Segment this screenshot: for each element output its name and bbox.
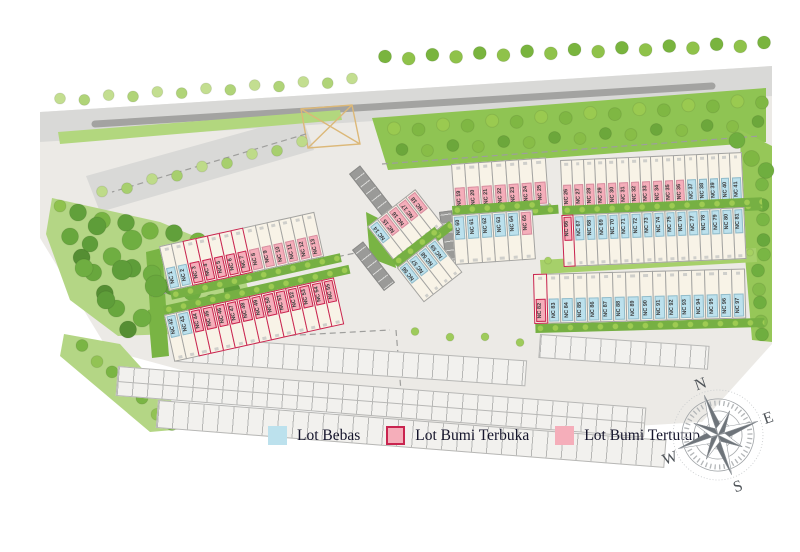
compass-star [665,382,772,489]
lot-color-band: NC 32 [631,182,640,205]
lot-number-label: NC 74 [656,217,662,233]
lot-number-label: NC 18 [411,195,425,211]
lot-number-label: NC 79 [713,214,719,230]
lot-number-label: NC 10 [275,246,284,262]
lot-number-label: NC 93 [683,299,689,315]
lot-color-band: NC 29 [597,184,606,207]
lot-number-label: NC 87 [604,301,610,317]
lot-color-band: NC 74 [655,213,664,237]
lot-number-label: NC 28 [587,188,593,204]
lot-color-band: NC 34 [653,181,662,204]
legend-swatch-lot-bumi-tertutup [555,426,574,445]
lot-number-label: NC 8 [252,252,260,265]
lot-block-h: NC 66NC 67NC 68NC 69NC 70NC 71NC 72NC 73… [562,197,765,267]
lot-number-label: NC 89 [630,300,636,316]
lot-number-label: NC 73 [645,217,651,233]
lot-number-label: NC 60 [456,220,463,236]
lot-color-band: NC 90 [641,296,652,319]
lot-number-label: NC 86 [591,301,597,317]
lot-color-band: NC 92 [667,296,678,319]
lot-color-band: NC 7 [237,251,250,273]
lot-color-band: NC 64 [507,212,519,235]
lot-number-label: NC 88 [617,301,623,317]
lot-nc-81[interactable]: NC 81 [732,207,747,259]
legend-label: Lot Bumi Terbuka [415,427,529,445]
lot-number-label: NC 62 [483,218,490,234]
legend: Lot Bebas Lot Bumi Terbuka Lot Bumi Tert… [268,426,700,445]
lot-color-band: NC 79 [711,210,720,234]
lot-number-label: NC 34 [655,185,661,201]
lot-number-label: NC 95 [709,298,715,314]
lot-number-label: NC 54 [314,286,323,302]
lot-nc-82[interactable]: NC 82 [533,274,548,324]
lot-number-label: NC 77 [690,215,696,231]
lot-number-label: NC 76 [679,216,685,232]
lot-number-label: NC 1 [169,271,177,284]
lot-color-band: NC 76 [677,212,686,236]
lot-color-band: NC 78 [700,211,709,235]
lot-color-band: NC 33 [642,182,651,205]
lot-color-band: NC 26 [563,185,572,208]
lot-color-band: NC 75 [666,212,675,236]
lot-number-label: NC 78 [702,215,708,231]
lot-number-label: NC 4 [204,263,212,276]
lot-number-label: NC 12 [299,240,308,256]
lot-color-band: NC 13 [309,235,322,257]
lot-number-label: NC 85 [578,302,584,318]
lot-nc-97[interactable]: NC 97 [731,268,746,318]
lot-number-label: NC 90 [644,300,650,316]
lot-number-label: NC 94 [696,299,702,315]
lot-nc-66[interactable]: NC 66 [561,214,576,266]
lot-number-label: NC 31 [621,186,627,202]
legend-swatch-lot-bebas [268,426,287,445]
lot-color-band: NC 94 [694,295,705,318]
lot-number-label: NC 47 [229,304,238,320]
lot-number-label: NC 37 [689,183,695,199]
compass-north-label: N [692,374,709,394]
lot-number-label: NC 6 [228,258,236,271]
lot-color-band: NC 37 [687,180,696,203]
lot-number-label: NC 75 [668,216,674,232]
lot-color-band: NC 55 [324,280,338,303]
lot-number-label: NC 9 [264,250,272,263]
lot-number-label: NC 44 [193,312,202,328]
lot-number-label: NC 27 [576,188,582,204]
lot-number-label: NC 59 [431,243,445,259]
lot-number-label: NC 67 [576,220,582,236]
lot-number-label: NC 80 [724,214,730,230]
lot-color-band: NC 87 [602,297,613,320]
lot-color-band: NC 71 [620,214,629,238]
lot-color-band: NC 30 [608,183,617,206]
legend-label: Lot Bebas [297,427,360,445]
lot-color-band: NC 60 [454,216,466,239]
lot-number-label: NC 7 [240,255,248,268]
lot-number-label: NC 48 [241,302,250,318]
lot-number-label: NC 35 [666,184,672,200]
compass-west-label: W [660,448,681,469]
lot-color-band: NC 36 [676,180,685,203]
lot-color-band: NC 89 [628,297,639,320]
lot-color-band: NC 96 [720,294,731,317]
lot-number-label: NC 25 [537,185,544,201]
lot-color-band: NC 67 [575,216,584,240]
lot-color-band: NC 95 [707,295,718,318]
lot-number-label: NC 46 [217,307,226,323]
lot-number-label: NC 50 [266,296,275,312]
lot-color-band: NC 38 [699,179,708,202]
compass-rose: N E S W [655,368,783,500]
lot-color-band: NC 62 [480,214,492,237]
lot-number-label: NC 30 [610,187,616,203]
lot-number-label: NC 53 [302,288,311,304]
lot-number-label: NC 51 [278,294,287,310]
lot-number-label: NC 72 [633,218,639,234]
lot-number-label: NC 82 [538,303,544,319]
lot-number-label: NC 61 [470,219,477,235]
lot-color-band: NC 86 [588,298,599,321]
lot-number-label: NC 97 [736,298,742,314]
lot-number-label: NC 29 [599,187,605,203]
compass-south-label: S [731,477,745,496]
lot-color-band: NC 88 [615,297,626,320]
lot-number-label: NC 38 [700,183,706,199]
lot-color-band: NC 27 [574,185,583,208]
lot-color-band: NC 35 [665,181,674,204]
lot-color-band: NC 72 [632,214,641,238]
lot-number-label: NC 81 [736,213,742,229]
lot-color-band: NC 41 [732,178,741,201]
lot-color-band: NC 91 [654,296,665,319]
lot-block-g: NC 60NC 61NC 62NC 63NC 64NC 65 [452,200,544,265]
lot-number-label: NC 91 [657,300,663,316]
lot-number-label: NC 63 [497,217,504,233]
lot-color-band: NC 40 [721,178,730,201]
lot-color-band: NC 77 [689,211,698,235]
lot-number-label: NC 83 [551,302,557,318]
lot-color-band: NC 63 [494,213,506,236]
lot-color-band: NC 31 [620,183,629,206]
lot-number-label: NC 11 [287,243,296,259]
lot-color-band: NC 83 [549,299,560,322]
legend-item-lot-bebas: Lot Bebas [268,426,360,445]
lot-color-band: NC 73 [643,213,652,237]
lot-color-band: NC 66 [563,217,572,241]
lot-color-band: NC 81 [734,209,743,233]
lot-color-band: NC 65 [521,212,533,235]
lot-color-band: NC 93 [681,295,692,318]
lot-number-label: NC 41 [734,181,740,197]
lot-number-label: NC 64 [510,216,517,232]
lot-number-label: NC 32 [632,186,638,202]
lot-number-label: NC 2 [181,268,189,281]
lot-color-band: NC 39 [710,179,719,202]
lot-color-band: NC 70 [609,215,618,239]
lot-number-label: NC 49 [254,299,263,315]
legend-swatch-lot-bumi-terbuka [386,426,405,445]
lot-number-label: NC 3 [193,266,201,279]
lot-number-label: NC 42 [169,318,178,334]
lot-number-label: NC 92 [670,299,676,315]
lot-number-label: NC 52 [290,291,299,307]
lot-nc-65[interactable]: NC 65 [518,209,536,260]
lot-color-band: NC 85 [575,298,586,321]
lot-number-label: NC 33 [644,185,650,201]
lot-number-label: NC 39 [711,182,717,198]
lot-number-label: NC 70 [611,219,617,235]
lot-color-band: NC 61 [467,215,479,238]
lot-number-label: NC 5 [216,260,224,273]
lot-number-label: NC 65 [523,215,530,231]
lot-number-label: NC 36 [678,184,684,200]
lot-block-i: NC 82NC 83NC 84NC 85NC 86NC 87NC 88NC 89… [534,268,765,333]
lot-number-label: NC 13 [311,238,320,254]
lot-color-band: NC 80 [723,210,732,234]
lot-color-band: NC 97 [733,294,744,317]
compass-east-label: E [761,409,776,428]
lot-number-label: NC 66 [565,221,571,237]
lot-number-label: NC 96 [723,298,729,314]
lot-number-label: NC 40 [723,182,729,198]
lot-nc-41[interactable]: NC 41 [729,152,743,202]
lot-number-label: NC 68 [588,220,594,236]
lot-color-band: NC 84 [562,298,573,321]
lot-number-label: NC 26 [565,189,571,205]
lot-color-band: NC 82 [536,299,547,322]
lot-number-label: NC 71 [622,218,628,234]
lot-color-band: NC 28 [586,184,595,207]
lot-number-label: NC 43 [181,315,190,331]
legend-item-lot-bumi-terbuka: Lot Bumi Terbuka [386,426,529,445]
lot-number-label: NC 84 [564,302,570,318]
lot-color-band: NC 69 [598,215,607,239]
lot-color-band: NC 68 [586,216,595,240]
lot-number-label: NC 45 [205,310,214,326]
lot-number-label: NC 69 [599,219,605,235]
lot-number-label: NC 55 [326,283,335,299]
